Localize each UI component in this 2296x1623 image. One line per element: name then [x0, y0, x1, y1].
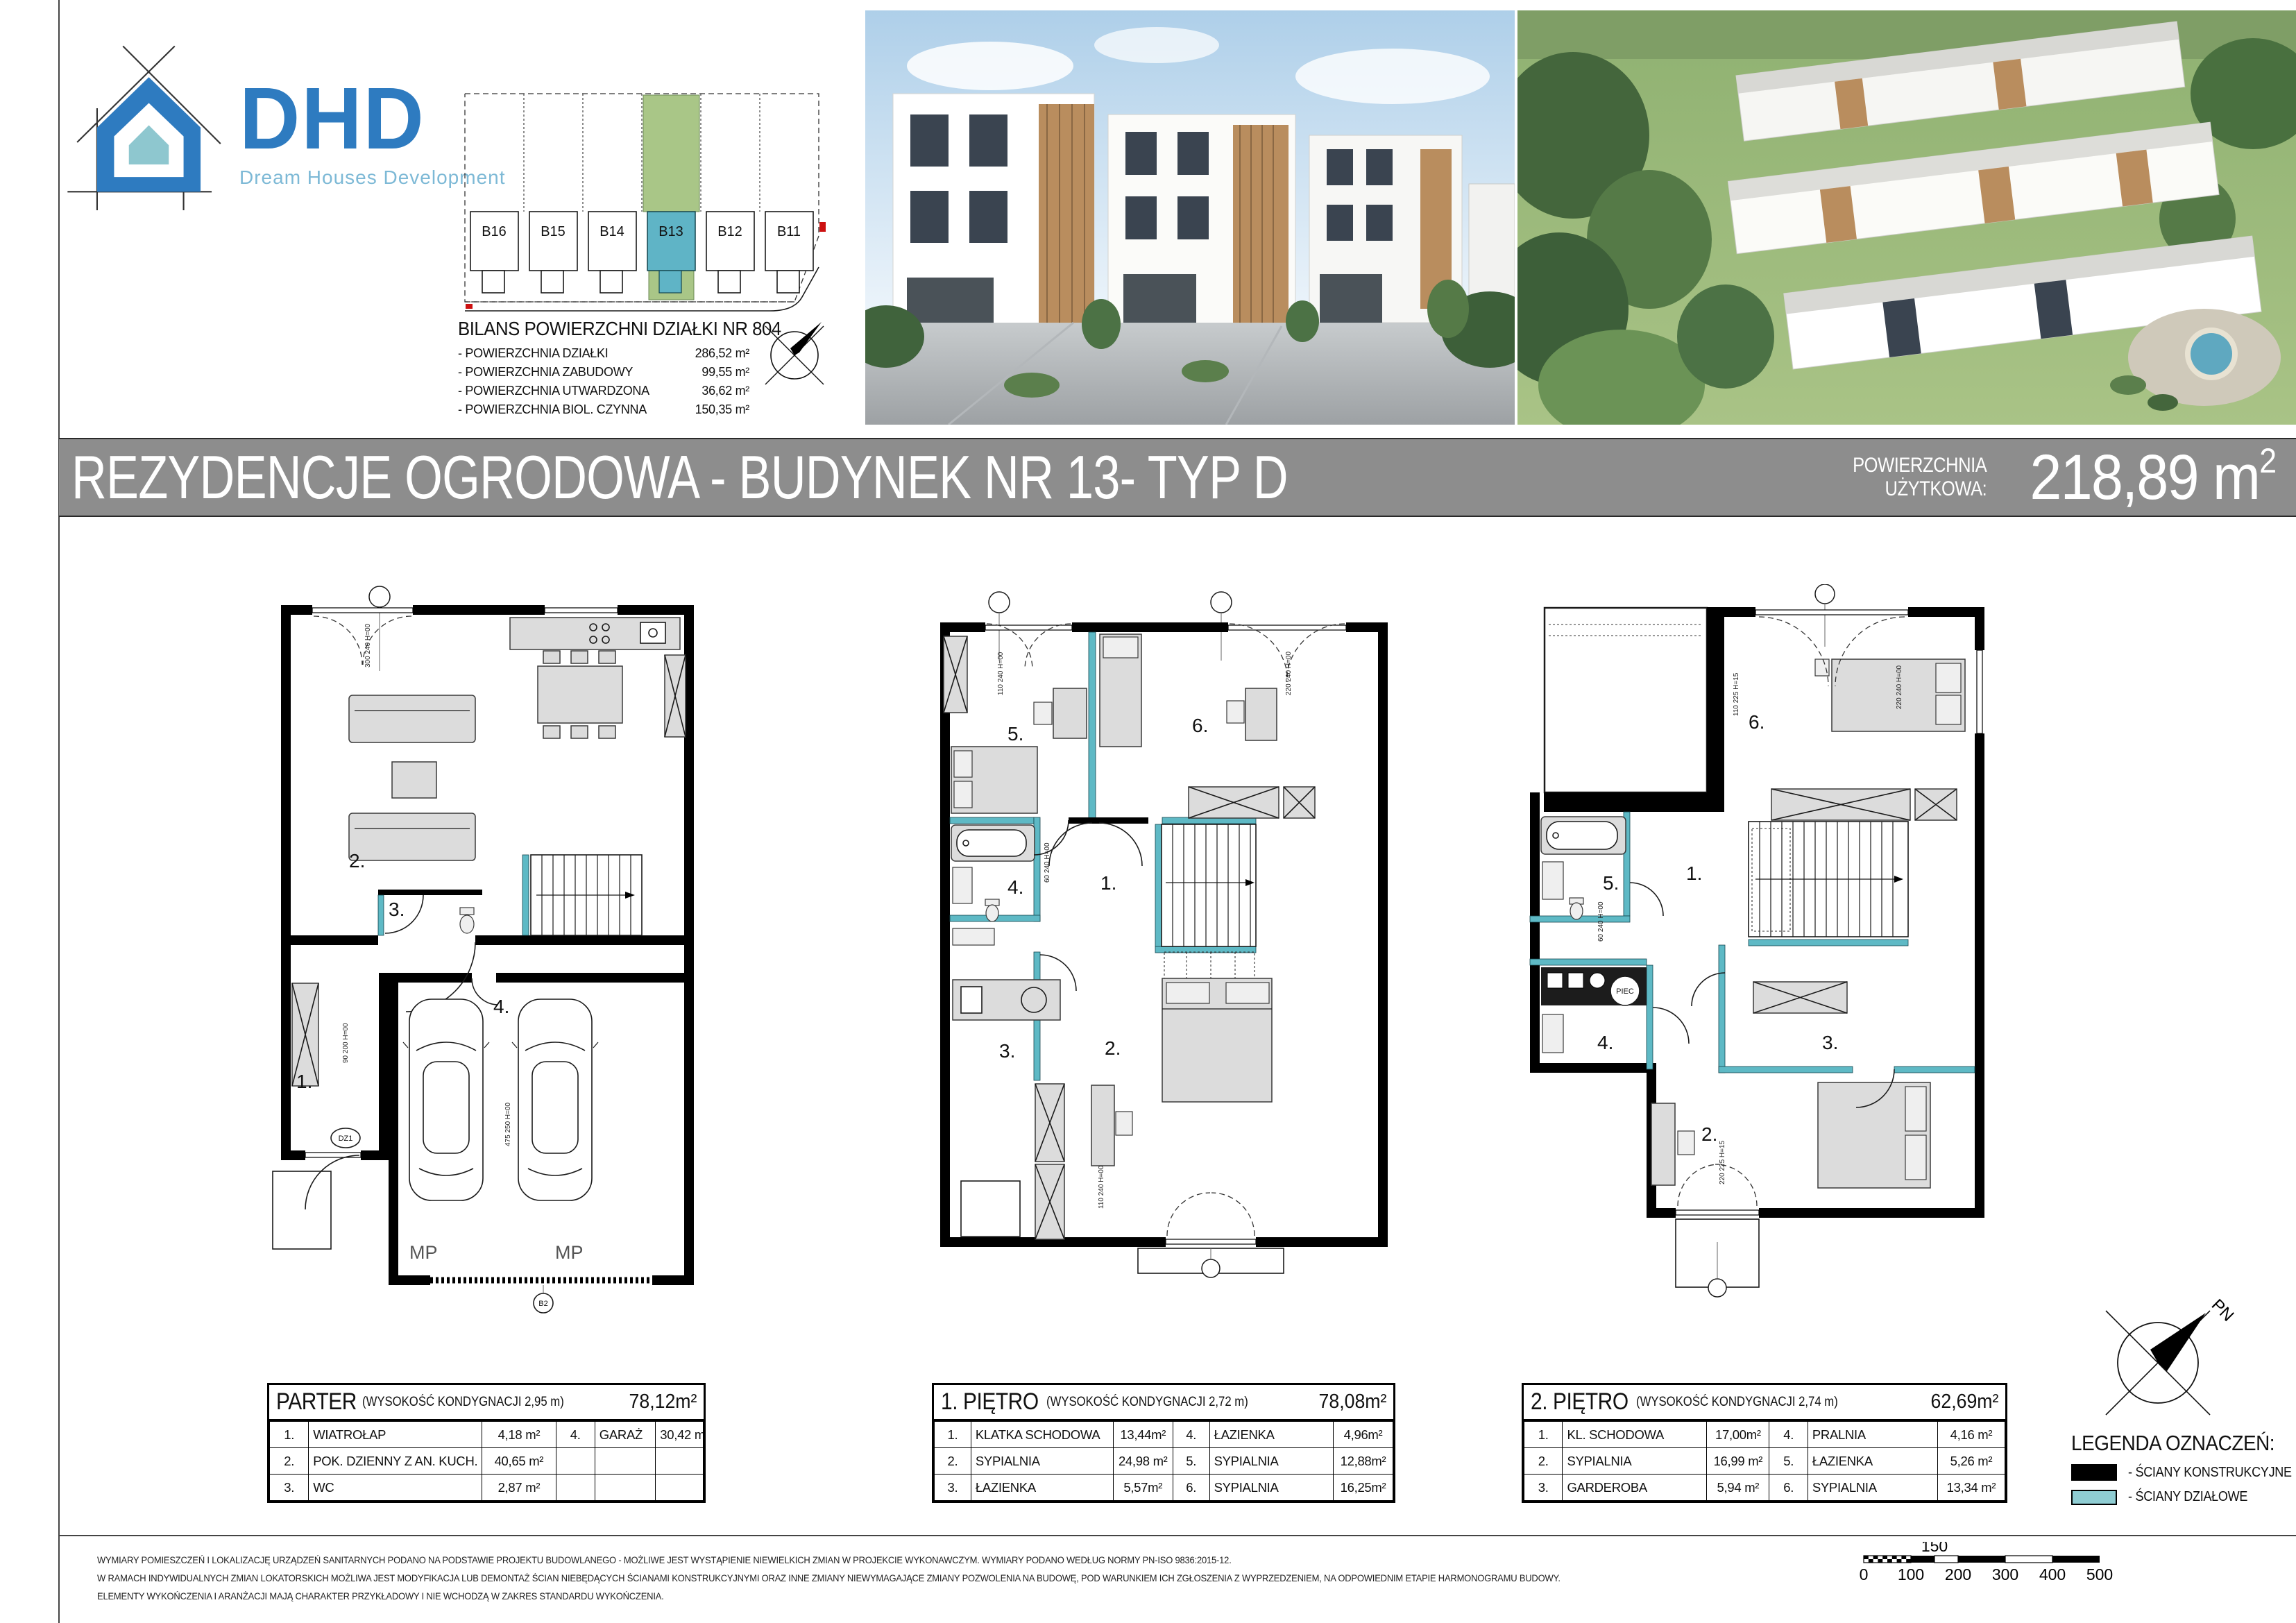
washbasin-icon [953, 867, 972, 903]
table-row: 3. GARDEROBA 5,94 m² 6. SYPIALNIA 13,34 … [1524, 1475, 2005, 1501]
dim-label: 220 240 H=00 [1896, 665, 1903, 709]
room-name [595, 1448, 656, 1475]
plot-label: B14 [599, 224, 624, 239]
table-row: 1. WIATROŁAP 4,18 m² 4. GARAŻ 30,42 m² [270, 1422, 704, 1448]
room-label-1: 1. [1686, 863, 1702, 884]
room-number: 2. [935, 1448, 971, 1475]
scale-bar: 150 0 100 200 300 400 500 [1858, 1542, 2129, 1594]
room-number: 3. [270, 1475, 309, 1501]
room-name: ŁAZIENKA [1808, 1448, 1937, 1475]
floor-total: 62,69m² [1930, 1391, 1998, 1413]
room-name: ŁAZIENKA [971, 1475, 1113, 1501]
plot-dividers [524, 94, 760, 212]
page-title: REZYDENCJE OGRODOWA - BUDYNEK NR 13- TYP… [71, 442, 1288, 513]
bilans-row: - POWIERZCHNIA UTWARDZONA 36,62 m² [458, 382, 749, 400]
wardrobe [944, 636, 967, 713]
car-icon [512, 999, 598, 1200]
room-area [656, 1448, 704, 1475]
room-label-3: 3. [999, 1040, 1015, 1062]
room-area: 5,57m² [1113, 1475, 1173, 1501]
room-name: SYPIALNIA [1808, 1475, 1937, 1501]
plot-garden-b13 [643, 95, 699, 212]
room-number: 4. [1173, 1422, 1209, 1448]
scale-tick: 400 [2039, 1565, 2066, 1583]
compass-small-icon [755, 312, 835, 392]
bilans-row: - POWIERZCHNIA ZABUDOWY 99,55 m² [458, 363, 749, 382]
floor-total: 78,08m² [1318, 1391, 1386, 1413]
room-label-3: 3. [1822, 1032, 1838, 1053]
north-label: PN [2208, 1295, 2234, 1325]
room-number: 1. [935, 1422, 971, 1448]
room-label-3: 3. [389, 899, 405, 920]
scale-segments [1864, 1556, 2100, 1563]
table-body: 1. WIATROŁAP 4,18 m² 4. GARAŻ 30,42 m² 2… [270, 1422, 704, 1501]
room-number: 1. [270, 1422, 309, 1448]
table-header: 2. PIĘTRO (WYSOKOŚĆ KONDYGNACJI 2,74 m) … [1524, 1385, 2005, 1421]
room-name: GARAŻ [595, 1422, 656, 1448]
floor-note: (WYSOKOŚĆ KONDYGNACJI 2,74 m) [1636, 1395, 1838, 1410]
table-row: 2. SYPIALNIA 24,98 m² 5. SYPIALNIA 12,88… [935, 1448, 1393, 1475]
room-label-4: 4. [1007, 876, 1023, 898]
scale-mid-label: 150 [1921, 1542, 1948, 1555]
bilans-row: - POWIERZCHNIA DZIAŁKI 286,52 m² [458, 344, 749, 363]
desk-icon [1091, 1085, 1132, 1166]
dim-label: 90 200 H=00 [342, 1023, 350, 1063]
room-area: 12,88m² [1334, 1448, 1393, 1475]
room-name: KLATKA SCHODOWA [971, 1422, 1113, 1448]
plot-label: B15 [541, 224, 566, 239]
dim-label: 110 240 H=00 [1098, 1165, 1105, 1209]
wardrobe [1189, 787, 1315, 818]
room-name [595, 1475, 656, 1501]
room-name: GARDEROBA [1563, 1475, 1707, 1501]
room-area: 4,16 m² [1937, 1422, 2005, 1448]
table-row: 3. WC 2,87 m² [270, 1475, 704, 1501]
legend-label: - ŚCIANY DZIAŁOWE [2128, 1489, 2247, 1505]
plot-label: B11 [777, 224, 801, 239]
scale-tick: 100 [1898, 1565, 1924, 1583]
dhd-logo-house-icon [64, 40, 234, 210]
toilet-icon [460, 908, 474, 933]
dim-label: 110 225 H=15 [1733, 672, 1740, 716]
room-number [556, 1448, 595, 1475]
desk-icon [1034, 688, 1087, 738]
disclaimer-line: ELEMENTY WYKOŃCZENIA I ARANŻACJI MAJĄ CH… [97, 1588, 1729, 1606]
bilans-value: 99,55 m² [701, 363, 749, 382]
table-parter: PARTER (WYSOKOŚĆ KONDYGNACJI 2,95 m) 78,… [267, 1383, 706, 1503]
table-pietro2: 2. PIĘTRO (WYSOKOŚĆ KONDYGNACJI 2,74 m) … [1522, 1383, 2007, 1503]
usable-area-block: POWIERZCHNIA UŻYTKOWA: 218,89 m2 [1829, 439, 2275, 516]
sofa [349, 813, 475, 860]
room-label-5: 5. [1603, 872, 1619, 894]
bilans-label: - POWIERZCHNIA DZIAŁKI [458, 344, 608, 363]
bilans-value: 286,52 m² [695, 344, 749, 363]
usable-area-value: 218,89 m2 [2030, 441, 2275, 514]
washbasin-icon [1542, 862, 1563, 899]
room-number: 3. [1524, 1475, 1563, 1501]
room-area: 13,34 m² [1937, 1475, 2005, 1501]
building-b13 [647, 212, 695, 271]
bathtub-icon [1541, 817, 1626, 854]
table-row: 1. KLATKA SCHODOWA 13,44m² 4. ŁAZIENKA 4… [935, 1422, 1393, 1448]
plot-label: B12 [717, 224, 742, 239]
table-row: 2. POK. DZIENNY Z AN. KUCH. 40,65 m² [270, 1448, 704, 1475]
floor-note: (WYSOKOŚĆ KONDYGNACJI 2,72 m) [1046, 1395, 1248, 1410]
dim-label: 60 240 H=00 [1597, 901, 1605, 942]
terrace [1545, 608, 1707, 792]
room-name: ŁAZIENKA [1209, 1422, 1333, 1448]
room-area: 17,00m² [1707, 1422, 1769, 1448]
room-label-2: 2. [1105, 1037, 1121, 1059]
bilans-value: 36,62 m² [701, 382, 749, 400]
wardrobe [1035, 1084, 1064, 1239]
stairs [1749, 822, 1908, 937]
scale-tick: 500 [2086, 1565, 2113, 1583]
structural-wall-swatch [2071, 1464, 2117, 1481]
room-label-5: 5. [1007, 723, 1023, 745]
bilans-label: - POWIERZCHNIA ZABUDOWY [458, 363, 633, 382]
title-bar: REZYDENCJE OGRODOWA - BUDYNEK NR 13- TYP… [59, 438, 2296, 517]
table-row: 3. ŁAZIENKA 5,57m² 6. SYPIALNIA 16,25m² [935, 1475, 1393, 1501]
scale-tick: 200 [1945, 1565, 1971, 1583]
door-tag-label: DZ1 [339, 1135, 353, 1143]
room-area: 5,94 m² [1707, 1475, 1769, 1501]
wardrobe [1771, 789, 1957, 820]
room-number: 6. [1173, 1475, 1209, 1501]
porch [273, 1171, 331, 1249]
legend: LEGENDA OZNACZEŃ: - ŚCIANY KONSTRUKCYJNE… [2071, 1431, 2296, 1505]
room-area: 4,18 m² [482, 1422, 556, 1448]
scale-tick: 0 [1860, 1565, 1869, 1583]
table-body: 1. KLATKA SCHODOWA 13,44m² 4. ŁAZIENKA 4… [935, 1422, 1393, 1501]
bathtub-icon [951, 825, 1035, 861]
table-header: PARTER (WYSOKOŚĆ KONDYGNACJI 2,95 m) 78,… [269, 1385, 704, 1421]
room-label-1: 1. [296, 1071, 312, 1092]
room-number: 2. [1524, 1448, 1563, 1475]
legend-title: LEGENDA OZNACZEŃ: [2071, 1431, 2286, 1456]
site-plan: B16 B15 B14 B13 B12 B11 [444, 62, 840, 316]
bilans-label: - POWIERZCHNIA UTWARDZONA [458, 382, 649, 400]
room-number: 4. [1769, 1422, 1808, 1448]
room-area: 5,26 m² [1937, 1448, 2005, 1475]
floor-total: 78,12m² [629, 1391, 697, 1413]
room-number: 5. [1769, 1448, 1808, 1475]
room-name: SYPIALNIA [971, 1448, 1113, 1475]
desk-icon [1227, 688, 1277, 740]
partition-wall-swatch [2071, 1490, 2117, 1505]
bilans-rows: - POWIERZCHNIA DZIAŁKI 286,52 m² - POWIE… [458, 344, 749, 419]
bed-icon [1818, 1082, 1930, 1188]
footer-divider [59, 1535, 2296, 1536]
room-label-1: 1. [1100, 872, 1116, 894]
bilans-label: - POWIERZCHNIA BIOL. CZYNNA [458, 400, 647, 419]
legend-item: - ŚCIANY KONSTRUKCYJNE [2071, 1464, 2296, 1481]
room-number: 5. [1173, 1448, 1209, 1475]
page-margin-line [58, 0, 60, 1623]
room-name: SYPIALNIA [1563, 1448, 1707, 1475]
desk-icon [1651, 1103, 1694, 1185]
photo-street-render [865, 10, 1515, 425]
dim-label: 60 240 H=00 [1044, 842, 1051, 883]
scale-tick: 300 [1992, 1565, 2018, 1583]
photo-aerial-render [1517, 10, 2296, 425]
legend-label: - ŚCIANY KONSTRUKCYJNE [2128, 1465, 2292, 1481]
bilans-value: 150,35 m² [695, 400, 749, 419]
dim-label: 475 250 H=00 [504, 1102, 512, 1146]
room-label-4: 4. [1597, 1032, 1613, 1053]
disclaimer: WYMIARY POMIESZCZEŃ I LOKALIZACJĘ URZĄDZ… [97, 1552, 1797, 1606]
room-area: 30,42 m² [656, 1422, 704, 1448]
room-label-6: 6. [1192, 715, 1208, 736]
room-name: SYPIALNIA [1209, 1448, 1333, 1475]
page: DHD Dream Houses Development [0, 0, 2296, 1623]
plot-label: B16 [482, 224, 507, 239]
building-row [470, 212, 813, 293]
table [961, 1181, 1020, 1237]
axis-tag-label: B2 [538, 1300, 547, 1308]
floor-plan-pietro2: PIEC [1520, 584, 2009, 1302]
disclaimer-line: WYMIARY POMIESZCZEŃ I LOKALIZACJĘ URZĄDZ… [97, 1552, 1729, 1570]
stairs [531, 855, 642, 935]
laundry-counter [953, 928, 1060, 1020]
bilans-title: BILANS POWIERZCHNI DZIAŁKI NR 804 [458, 318, 726, 340]
room-label-2: 2. [349, 850, 365, 872]
table-pietro1: 1. PIĘTRO (WYSOKOŚĆ KONDYGNACJI 2,72 m) … [932, 1383, 1395, 1503]
table-body: 1. KL. SCHODOWA 17,00m² 4. PRALNIA 4,16 … [1524, 1422, 2005, 1501]
room-name: WIATROŁAP [309, 1422, 482, 1448]
table-row: 2. SYPIALNIA 16,99 m² 5. ŁAZIENKA 5,26 m… [1524, 1448, 2005, 1475]
site-red-marker [819, 222, 826, 232]
legend-item: - ŚCIANY DZIAŁOWE [2071, 1489, 2296, 1505]
toilet-icon [1570, 898, 1583, 919]
dim-label: 220 240 H=00 [1285, 651, 1293, 695]
room-area: 16,99 m² [1707, 1448, 1769, 1475]
dim-label: 110 240 H=00 [997, 652, 1005, 695]
room-area: 4,96m² [1334, 1422, 1393, 1448]
double-bed-icon [1162, 978, 1272, 1102]
floor-name: PARTER [276, 1388, 357, 1416]
room-area: 40,65 m² [482, 1448, 556, 1475]
sofa [349, 695, 475, 742]
bed-icon [1100, 634, 1141, 747]
table-header: 1. PIĘTRO (WYSOKOŚĆ KONDYGNACJI 2,72 m) … [934, 1385, 1393, 1421]
room-name: PRALNIA [1808, 1422, 1937, 1448]
room-number: 6. [1769, 1475, 1808, 1501]
room-area: 16,25m² [1334, 1475, 1393, 1501]
room-number [556, 1475, 595, 1501]
room-number: 4. [556, 1422, 595, 1448]
room-number: 1. [1524, 1422, 1563, 1448]
usable-area-label: POWIERZCHNIA UŻYTKOWA: [1853, 454, 1987, 501]
room-label-4: 4. [493, 996, 509, 1017]
table-row: 1. KL. SCHODOWA 17,00m² 4. PRALNIA 4,16 … [1524, 1422, 2005, 1448]
plot-label: B13 [658, 224, 683, 239]
floor-name: 2. PIĘTRO [1531, 1388, 1629, 1416]
floor-plan-pietro1: 5. 6. 4. 1. 3. 2. 110 240 H=00 220 240 H… [930, 591, 1398, 1282]
room-name: SYPIALNIA [1209, 1475, 1333, 1501]
wardrobe [1753, 982, 1847, 1013]
room-number: 3. [935, 1475, 971, 1501]
disclaimer-line: W RAMACH INDYWIDUALNYCH ZMIAN LOKATORSKI… [97, 1570, 1729, 1588]
room-name: POK. DZIENNY Z AN. KUCH. [309, 1448, 482, 1475]
floor-plan-parter: 2. 3. 1. 4. MP MP 90 200 H=00 475 250 H=… [267, 584, 708, 1316]
dining-table [538, 651, 622, 738]
car-icon [403, 999, 489, 1200]
toilet-icon [985, 899, 999, 921]
compass-north-icon: PN [2085, 1285, 2234, 1434]
room-area [656, 1475, 704, 1501]
parking-label: MP [555, 1242, 584, 1263]
room-area: 2,87 m² [482, 1475, 556, 1501]
dim-label: 300 240 H=00 [364, 623, 372, 668]
site-red-marker [466, 304, 473, 309]
room-label-2: 2. [1701, 1123, 1717, 1145]
parking-label: MP [409, 1242, 438, 1263]
room-label-6: 6. [1749, 711, 1764, 733]
room-number: 2. [270, 1448, 309, 1475]
coffee-table [392, 762, 436, 798]
bilans-row: - POWIERZCHNIA BIOL. CZYNNA 150,35 m² [458, 400, 749, 419]
furnace-label: PIEC [1616, 987, 1634, 996]
dim-label: 220 225 H=15 [1719, 1140, 1726, 1184]
bed-icon [951, 747, 1037, 813]
room-area: 24,98 m² [1113, 1448, 1173, 1475]
room-name: WC [309, 1475, 482, 1501]
bilans-block: BILANS POWIERZCHNI DZIAŁKI NR 804 - POWI… [458, 318, 749, 419]
room-name: KL. SCHODOWA [1563, 1422, 1707, 1448]
floor-name: 1. PIĘTRO [941, 1388, 1039, 1416]
floor-note: (WYSOKOŚĆ KONDYGNACJI 2,95 m) [362, 1395, 564, 1410]
room-area: 13,44m² [1113, 1422, 1173, 1448]
